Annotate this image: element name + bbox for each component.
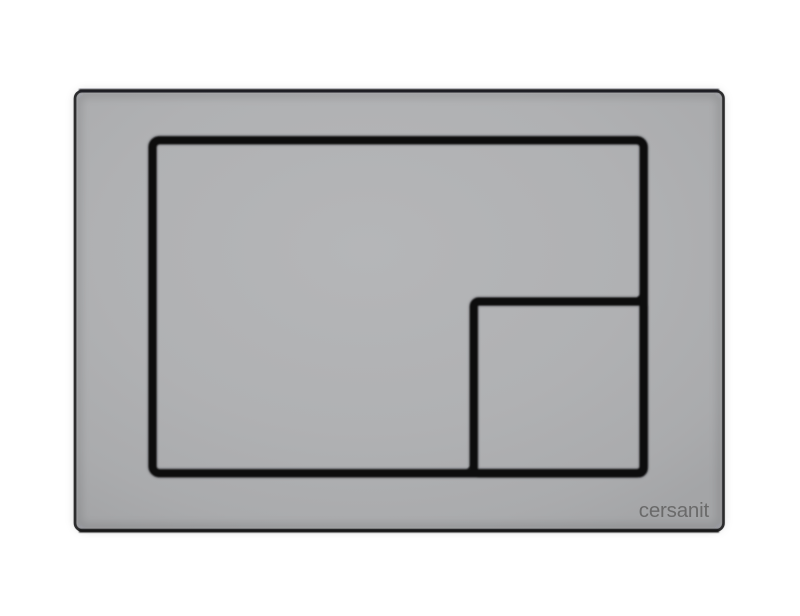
svg-text:cersanit: cersanit (639, 499, 710, 522)
